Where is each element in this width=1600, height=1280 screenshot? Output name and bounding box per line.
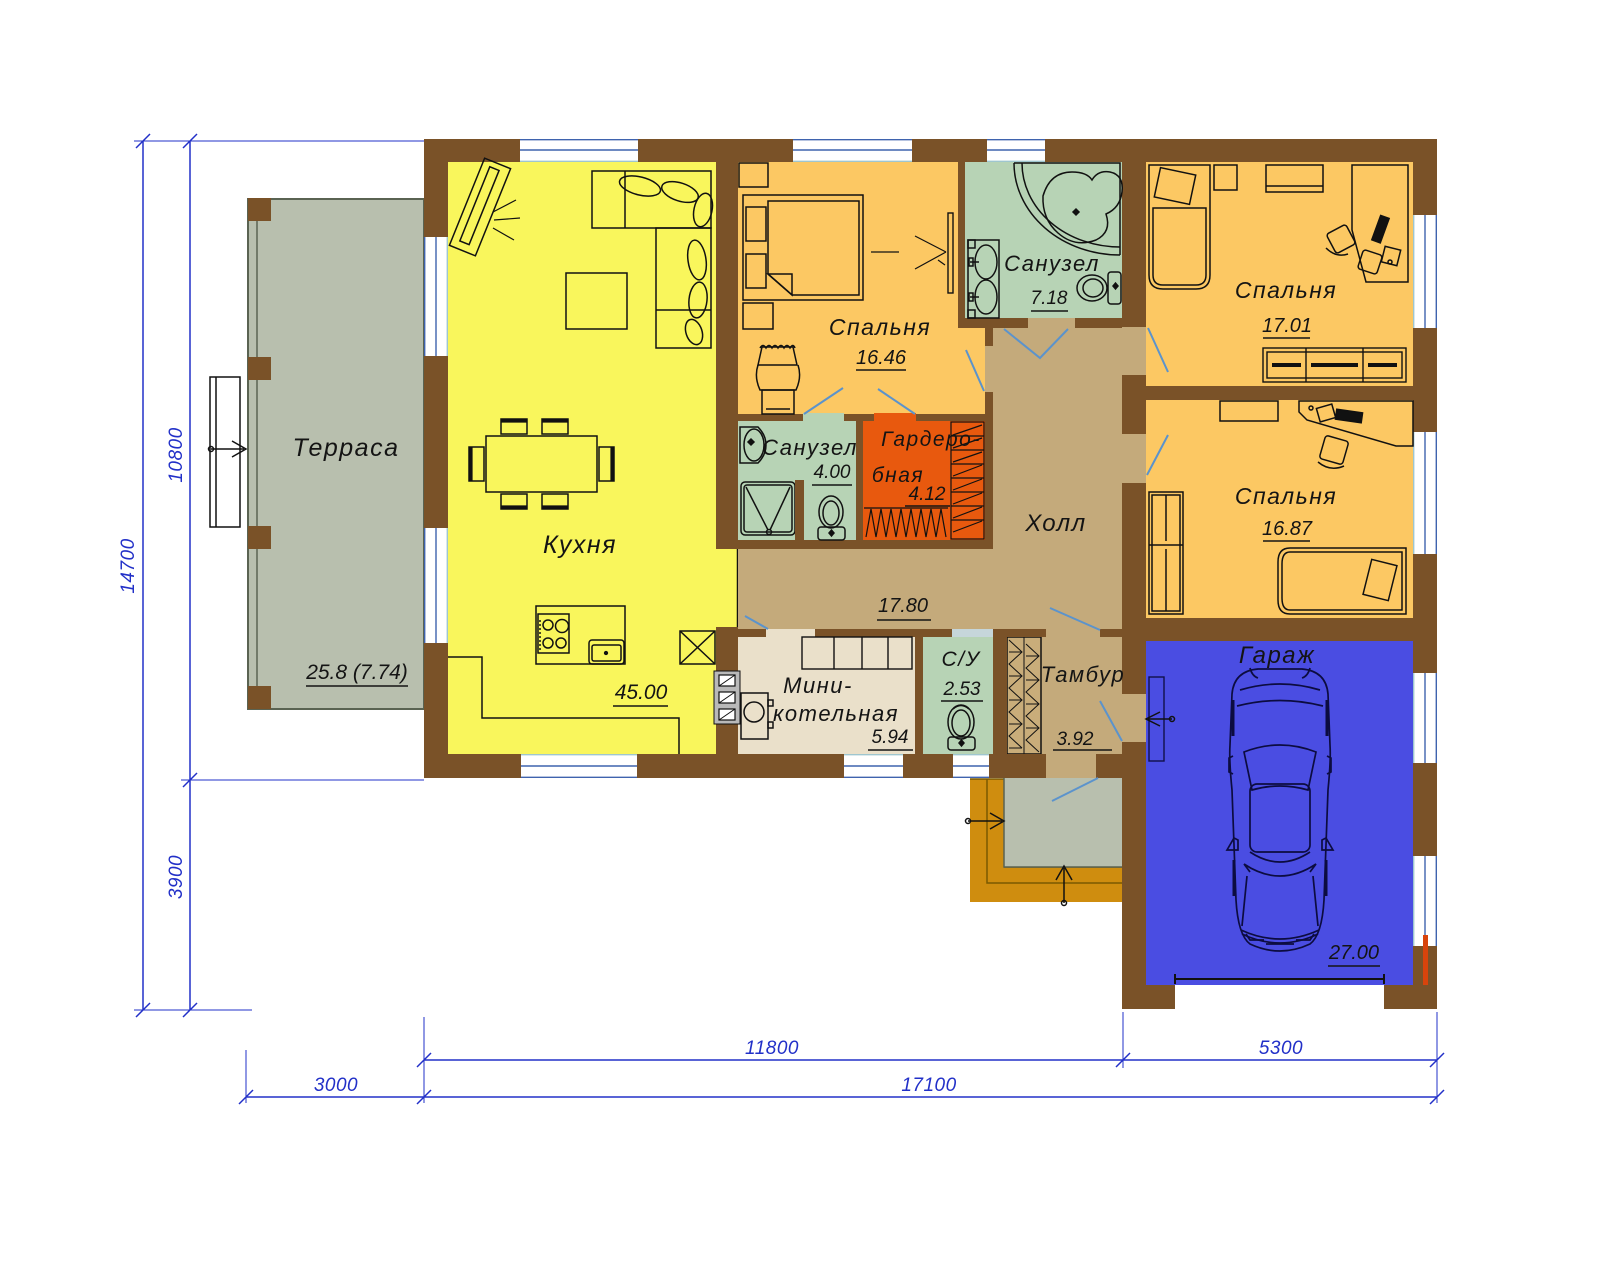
svg-text:5.94: 5.94 xyxy=(872,727,909,748)
svg-text:4.12: 4.12 xyxy=(909,484,946,505)
svg-text:16.87: 16.87 xyxy=(1262,518,1313,540)
svg-text:25.8 (7.74): 25.8 (7.74) xyxy=(305,661,408,684)
svg-text:С/У: С/У xyxy=(942,648,982,671)
svg-text:Мини-: Мини- xyxy=(783,673,853,698)
svg-text:3000: 3000 xyxy=(314,1075,358,1096)
svg-text:3.92: 3.92 xyxy=(1057,729,1094,750)
svg-text:5300: 5300 xyxy=(1259,1038,1303,1059)
svg-text:17100: 17100 xyxy=(901,1075,956,1096)
svg-text:Кухня: Кухня xyxy=(543,531,617,559)
svg-text:3900: 3900 xyxy=(166,855,187,899)
svg-text:27.00: 27.00 xyxy=(1328,942,1379,964)
svg-text:Тамбур: Тамбур xyxy=(1041,662,1125,687)
svg-text:17.01: 17.01 xyxy=(1262,315,1312,337)
svg-text:котельная: котельная xyxy=(773,701,899,726)
svg-text:45.00: 45.00 xyxy=(615,681,668,704)
svg-text:17.80: 17.80 xyxy=(878,595,928,617)
svg-text:Санузел: Санузел xyxy=(762,435,858,460)
svg-text:Спальня: Спальня xyxy=(829,314,931,340)
svg-text:14700: 14700 xyxy=(118,538,139,593)
svg-text:11800: 11800 xyxy=(745,1038,799,1059)
svg-text:Санузел: Санузел xyxy=(1004,251,1100,276)
svg-text:Холл: Холл xyxy=(1024,510,1086,537)
svg-text:2.53: 2.53 xyxy=(943,679,981,700)
svg-text:Гараж: Гараж xyxy=(1239,642,1315,669)
svg-text:16.46: 16.46 xyxy=(856,347,907,369)
svg-text:4.00: 4.00 xyxy=(814,462,851,483)
svg-text:Спальня: Спальня xyxy=(1235,277,1337,303)
svg-text:Терраса: Терраса xyxy=(293,434,400,462)
svg-text:7.18: 7.18 xyxy=(1031,288,1068,309)
svg-text:10800: 10800 xyxy=(166,427,187,482)
svg-text:Спальня: Спальня xyxy=(1235,483,1337,509)
svg-text:Гардеро-: Гардеро- xyxy=(881,428,981,451)
